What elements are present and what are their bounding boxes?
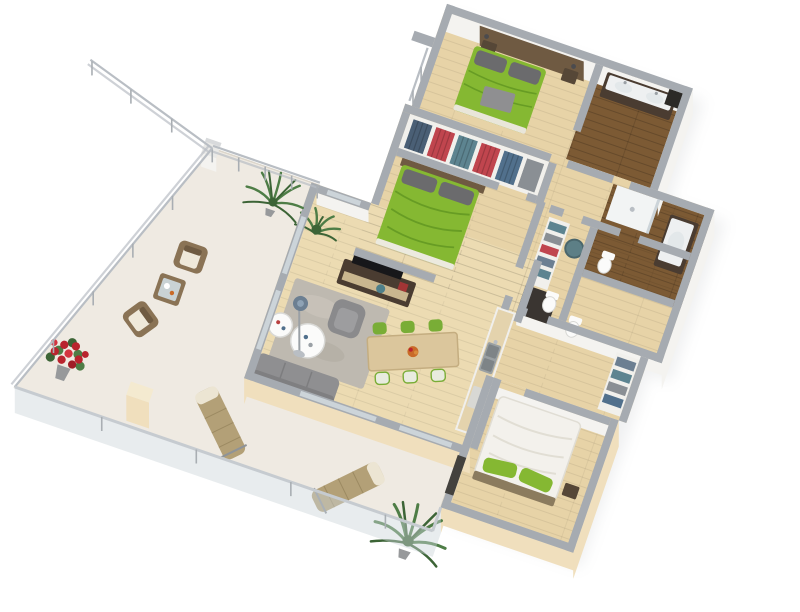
wall-stub-west-upper <box>411 31 435 48</box>
scene-rotated-frame <box>0 0 764 612</box>
floorplan-render <box>0 0 800 612</box>
floorplan-canvas <box>0 0 800 612</box>
railing-balcony-extension <box>74 59 227 153</box>
